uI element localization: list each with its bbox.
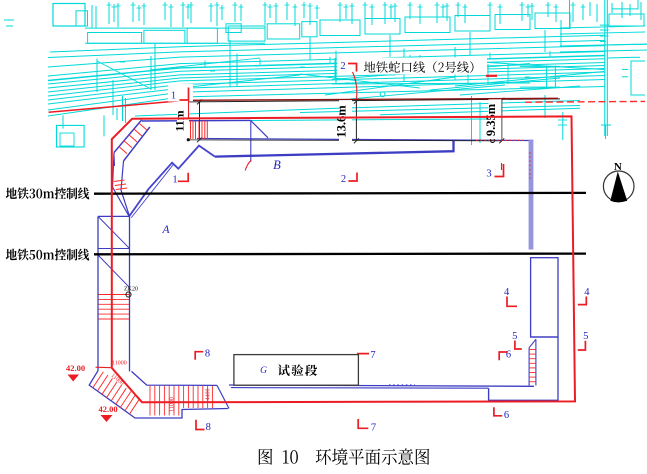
svg-text:11000: 11000 bbox=[170, 397, 176, 412]
svg-text:11000: 11000 bbox=[112, 361, 127, 367]
svg-text:6: 6 bbox=[504, 410, 509, 421]
svg-text:ZK20: ZK20 bbox=[124, 287, 138, 293]
svg-text:8: 8 bbox=[206, 422, 211, 433]
svg-text:B: B bbox=[273, 158, 281, 172]
svg-text:N: N bbox=[614, 161, 622, 173]
svg-text:5: 5 bbox=[512, 331, 517, 342]
svg-text:5: 5 bbox=[583, 331, 588, 342]
svg-text:A: A bbox=[161, 224, 170, 236]
svg-text:4: 4 bbox=[504, 287, 510, 298]
svg-text:4400: 4400 bbox=[206, 389, 212, 401]
svg-text:7: 7 bbox=[370, 350, 375, 361]
svg-text:3: 3 bbox=[486, 169, 491, 180]
svg-text:G: G bbox=[260, 366, 267, 376]
svg-text:42.00: 42.00 bbox=[98, 404, 117, 414]
svg-text:11m: 11m bbox=[173, 110, 187, 131]
svg-text:42.00: 42.00 bbox=[66, 363, 85, 373]
svg-text:7: 7 bbox=[371, 423, 376, 434]
svg-text:8: 8 bbox=[205, 349, 210, 360]
svg-text:1: 1 bbox=[171, 91, 176, 102]
svg-text:4: 4 bbox=[584, 287, 590, 298]
svg-text:2: 2 bbox=[341, 174, 346, 185]
svg-text:2: 2 bbox=[340, 61, 345, 72]
svg-text:9.35m: 9.35m bbox=[484, 103, 498, 136]
svg-text:13.6m: 13.6m bbox=[335, 105, 349, 138]
svg-text:1: 1 bbox=[172, 175, 177, 186]
